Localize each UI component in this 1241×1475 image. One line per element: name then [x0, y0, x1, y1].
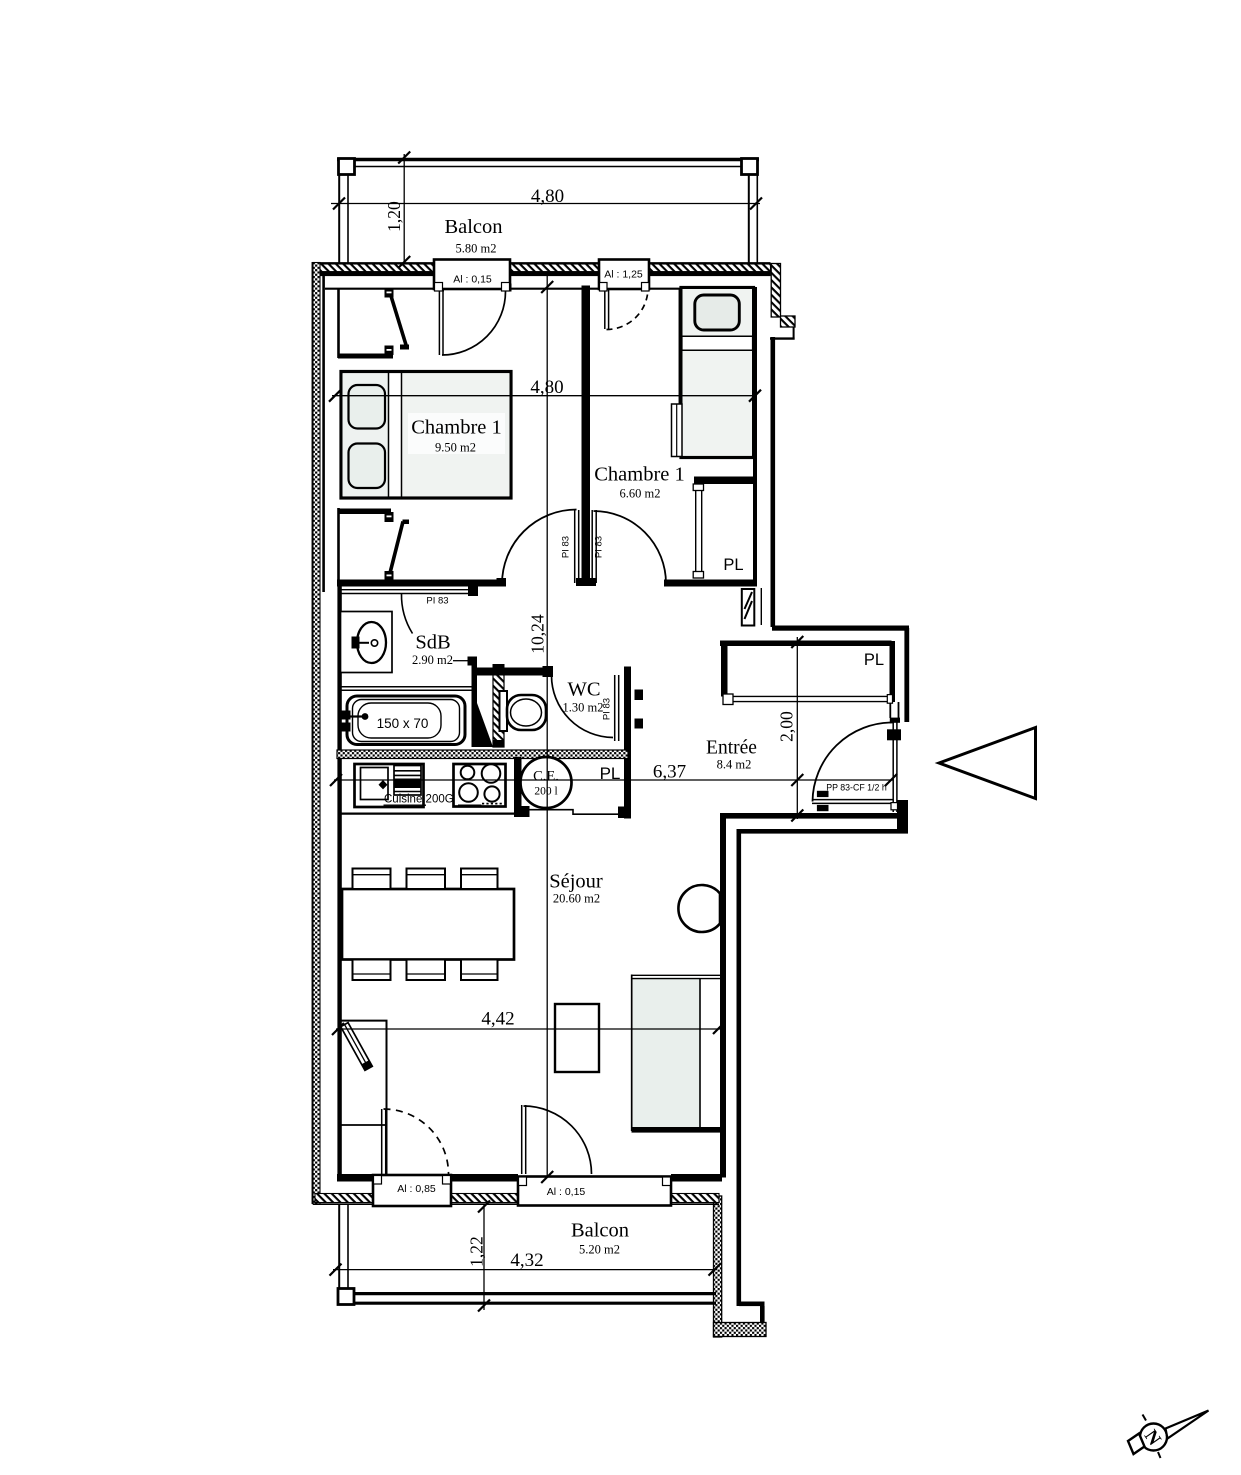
svg-text:4,80: 4,80	[530, 377, 563, 398]
svg-text:Balcon: Balcon	[571, 1220, 629, 1242]
svg-text:PI 83: PI 83	[426, 596, 448, 607]
svg-text:PP 83-CF 1/2 h: PP 83-CF 1/2 h	[826, 783, 887, 793]
svg-text:6,37: 6,37	[653, 762, 686, 783]
svg-text:WC: WC	[567, 679, 600, 701]
svg-text:C.E.: C.E.	[533, 769, 559, 785]
svg-text:2,00: 2,00	[777, 711, 797, 742]
svg-text:PL: PL	[600, 764, 621, 783]
svg-text:PL: PL	[723, 556, 743, 574]
svg-text:20.60 m2: 20.60 m2	[553, 892, 600, 906]
svg-text:Al : 0,15: Al : 0,15	[547, 1186, 586, 1198]
svg-text:Al : 0,85: Al : 0,85	[397, 1183, 436, 1195]
svg-text:4,32: 4,32	[510, 1250, 543, 1271]
svg-text:9.50 m2: 9.50 m2	[435, 441, 476, 455]
svg-text:Balcon: Balcon	[444, 216, 502, 238]
svg-text:6.60 m2: 6.60 m2	[620, 487, 661, 501]
svg-text:Séjour: Séjour	[549, 871, 603, 893]
svg-text:4,80: 4,80	[531, 186, 564, 207]
svg-text:PI 83: PI 83	[594, 536, 605, 558]
svg-text:SdB: SdB	[415, 632, 450, 654]
svg-text:1,20: 1,20	[384, 201, 404, 232]
svg-text:Al : 1,25: Al : 1,25	[604, 269, 643, 281]
svg-text:Cuisine 200G: Cuisine 200G	[384, 794, 454, 806]
svg-text:Al : 0,15: Al : 0,15	[453, 274, 492, 286]
svg-text:Entrée: Entrée	[706, 738, 757, 759]
svg-text:1,22: 1,22	[467, 1236, 487, 1267]
svg-text:5.80 m2: 5.80 m2	[456, 242, 497, 256]
svg-text:PL: PL	[864, 651, 884, 669]
svg-text:8.4 m2: 8.4 m2	[717, 758, 752, 772]
svg-text:PI 83: PI 83	[561, 536, 572, 558]
svg-text:Chambre 1: Chambre 1	[594, 464, 685, 486]
svg-text:150 x 70: 150 x 70	[377, 716, 429, 731]
svg-text:10,24: 10,24	[528, 614, 548, 654]
svg-text:5.20 m2: 5.20 m2	[579, 1243, 620, 1257]
svg-text:2.90 m2: 2.90 m2	[412, 653, 453, 667]
svg-text:200 l: 200 l	[534, 786, 557, 798]
svg-text:1.30 m2: 1.30 m2	[563, 701, 604, 715]
svg-text:4,42: 4,42	[481, 1009, 514, 1030]
svg-text:Chambre 1: Chambre 1	[411, 417, 502, 439]
